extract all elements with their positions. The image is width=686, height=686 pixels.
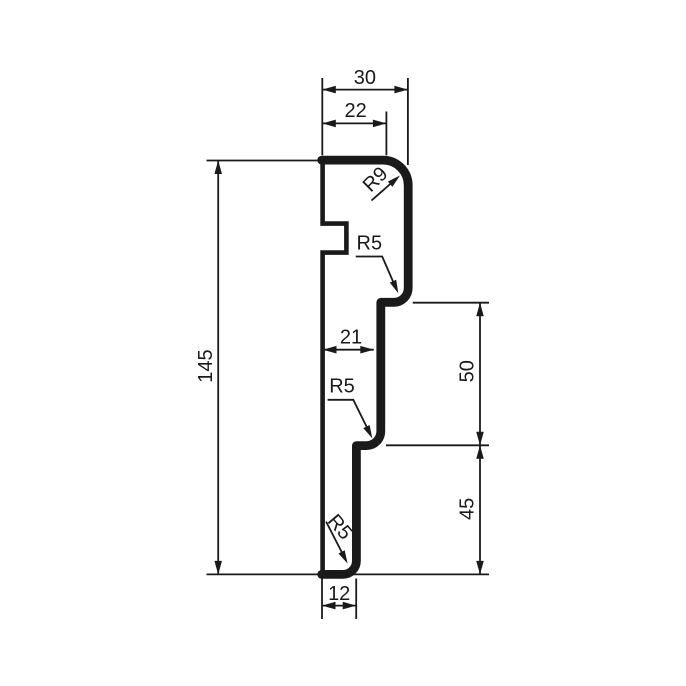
svg-text:21: 21 (340, 327, 362, 349)
svg-text:45: 45 (457, 498, 479, 520)
svg-text:R5: R5 (329, 375, 355, 397)
svg-text:22: 22 (344, 100, 366, 122)
svg-text:50: 50 (456, 360, 478, 382)
svg-text:145: 145 (195, 349, 217, 382)
svg-text:30: 30 (354, 67, 376, 89)
svg-text:R5: R5 (357, 233, 383, 255)
svg-text:12: 12 (328, 583, 350, 605)
